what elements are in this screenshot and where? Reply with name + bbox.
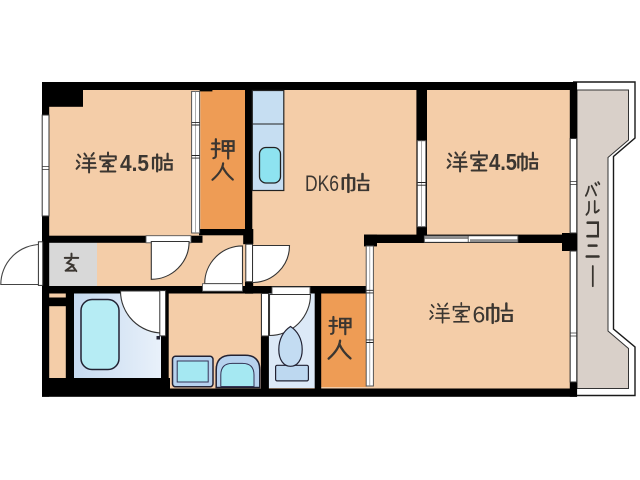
svg-text:4.5: 4.5 bbox=[120, 150, 149, 176]
svg-text:DK6: DK6 bbox=[305, 171, 339, 196]
svg-text:4.5: 4.5 bbox=[489, 149, 517, 175]
svg-text:6: 6 bbox=[473, 302, 486, 328]
